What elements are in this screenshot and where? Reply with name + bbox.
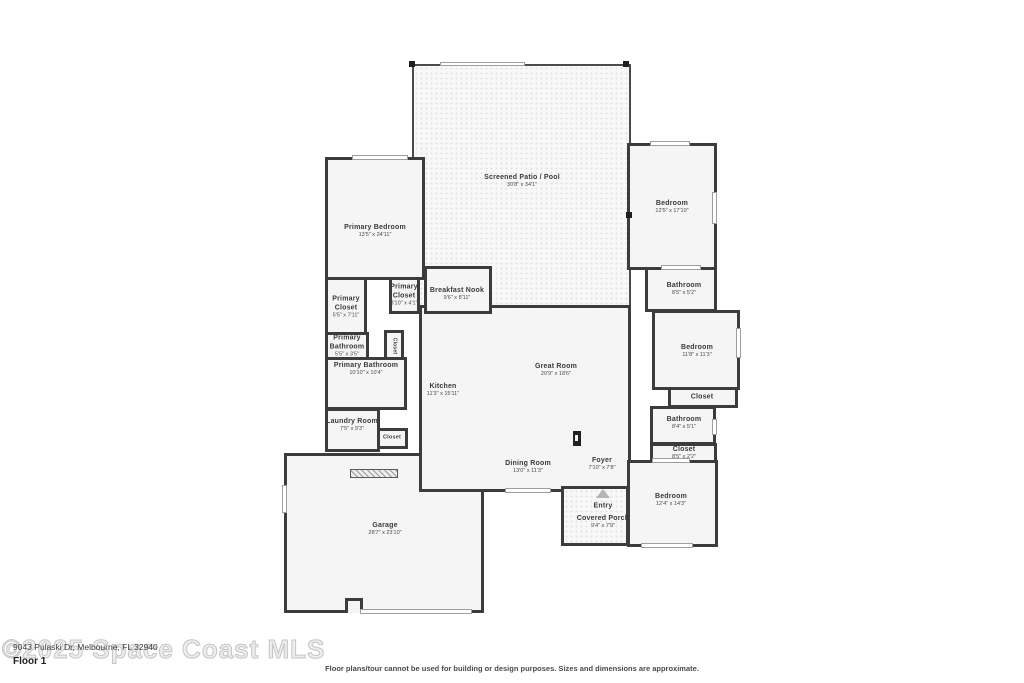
room-label-bedroom-mid-right: Bedroom 11'8" x 11'3" <box>681 343 713 359</box>
room-name: Great Room <box>535 362 577 371</box>
window <box>505 488 551 493</box>
room-dims: 8'5" x 2'2" <box>672 454 696 461</box>
room-dims: 30'8" x 34'1" <box>484 182 560 189</box>
window <box>736 328 741 358</box>
window <box>360 609 472 614</box>
room-dims: 28'7" x 23'10" <box>368 530 401 537</box>
room-label-garage: Garage 28'7" x 23'10" <box>368 521 401 537</box>
wall-corner-tick <box>409 61 415 67</box>
room-name: Closet <box>672 445 696 454</box>
room-label-laundry-closet: Closet <box>383 434 401 441</box>
room-label-primary-closet-large: Primary Closet 5'5" x 7'11" <box>321 294 371 319</box>
room-dims: 7'10" x 7'8" <box>588 465 615 472</box>
room-name: Kitchen <box>427 382 459 391</box>
room-name: Entry <box>594 501 613 510</box>
room-name: Breakfast Nook <box>430 286 484 295</box>
window <box>282 485 287 513</box>
wall-corner-tick <box>623 61 629 67</box>
room-label-primary-bathroom-small: Primary Bathroom 5'5" x 3'5" <box>322 333 372 358</box>
room-name: Screened Patio / Pool <box>484 173 560 182</box>
room-name: Bedroom <box>655 492 687 501</box>
room-dims: 13'0" x 11'3" <box>505 468 551 475</box>
room-dims: 3'10" x 4'1" <box>379 301 429 308</box>
room-name: Foyer <box>588 456 615 465</box>
room-dims: 20'9" x 18'6" <box>535 371 577 378</box>
room-label-closet-lower-right: Closet 8'5" x 2'2" <box>672 445 696 461</box>
room-name: Closet <box>691 392 714 401</box>
window <box>650 141 690 146</box>
room-label-primary-closet-small: Primary Closet 3'10" x 4'1" <box>379 282 429 307</box>
room-name: Bedroom <box>681 343 713 352</box>
room-name: Laundry Room <box>326 417 378 426</box>
room-dims: 5'5" x 3'5" <box>322 352 372 359</box>
room-name: Bedroom <box>655 199 688 208</box>
room-label-bedroom-bottom-right: Bedroom 12'4" x 14'3" <box>655 492 687 508</box>
room-label-kitchen: Kitchen 11'3" x 15'11" <box>427 382 459 398</box>
room-name: Primary Bedroom <box>344 223 406 232</box>
room-name: Primary Bathroom <box>322 333 372 351</box>
room-label-foyer: Foyer 7'10" x 7'8" <box>588 456 615 472</box>
window <box>641 543 693 548</box>
window <box>440 62 525 66</box>
room-dims: 10'10" x 10'4" <box>334 370 398 377</box>
room-label-hall-closet: Closet <box>391 338 398 354</box>
room-name: Primary Bathroom <box>334 361 398 370</box>
entry-arrow-icon <box>596 489 610 498</box>
room-name: Closet <box>383 434 401 441</box>
room-name: Bathroom <box>667 415 702 424</box>
room-label-dining-room: Dining Room 13'0" x 11'3" <box>505 459 551 475</box>
room-name: Bathroom <box>667 281 702 290</box>
room-label-breakfast-nook: Breakfast Nook 9'6" x 8'11" <box>430 286 484 302</box>
room-dims: 9'4" x 7'9" <box>577 523 629 530</box>
room-name: Primary Closet <box>321 294 371 312</box>
listing-address: 9043 Pulaski Dr, Melbourne, FL 32940 <box>13 642 158 652</box>
room-label-covered-porch: Covered Porch 9'4" x 7'9" <box>577 514 629 530</box>
garage-vent-hatch <box>350 469 398 478</box>
room-label-bathroom-top-right: Bathroom 8'5" x 5'2" <box>667 281 702 297</box>
foyer-door-marker <box>573 431 581 446</box>
room-dims: 11'8" x 11'3" <box>681 352 713 359</box>
disclaimer-text: Floor plans/tour cannot be used for buil… <box>0 664 1024 673</box>
window <box>352 155 408 160</box>
room-name: Dining Room <box>505 459 551 468</box>
room-dims: 12'5" x 17'10" <box>655 208 688 215</box>
wall-corner-tick <box>626 212 632 218</box>
room-label-entry: Entry <box>594 501 613 510</box>
room-label-great-room: Great Room 20'9" x 18'6" <box>535 362 577 378</box>
room-name: Primary Closet <box>379 282 429 300</box>
room-name: Closet <box>391 338 398 354</box>
room-label-primary-bedroom: Primary Bedroom 13'5" x 24'11" <box>344 223 406 239</box>
room-label-screened-patio: Screened Patio / Pool 30'8" x 34'1" <box>484 173 560 189</box>
room-label-laundry: Laundry Room 7'5" x 9'3" <box>326 417 378 433</box>
room-name: Garage <box>368 521 401 530</box>
room-label-closet-mid-right: Closet <box>691 392 714 401</box>
window <box>712 419 717 435</box>
room-dims: 11'3" x 15'11" <box>427 391 459 398</box>
room-primary-bedroom <box>325 157 425 280</box>
room-dims: 8'4" x 5'1" <box>667 424 702 431</box>
room-dims: 9'6" x 8'11" <box>430 295 484 302</box>
room-dims: 13'5" x 24'11" <box>344 232 406 239</box>
window <box>661 265 701 270</box>
room-label-bathroom-mid-right: Bathroom 8'4" x 5'1" <box>667 415 702 431</box>
room-dims: 5'5" x 7'11" <box>321 313 371 320</box>
room-dims: 7'5" x 9'3" <box>326 426 378 433</box>
floor-plan-canvas: Screened Patio / Pool 30'8" x 34'1" Prim… <box>0 0 1024 683</box>
room-label-primary-bathroom: Primary Bathroom 10'10" x 10'4" <box>334 361 398 377</box>
room-name: Covered Porch <box>577 514 629 523</box>
room-label-bedroom-top-right: Bedroom 12'5" x 17'10" <box>655 199 688 215</box>
window <box>712 192 717 224</box>
room-dims: 12'4" x 14'3" <box>655 501 687 508</box>
room-dims: 8'5" x 5'2" <box>667 290 702 297</box>
